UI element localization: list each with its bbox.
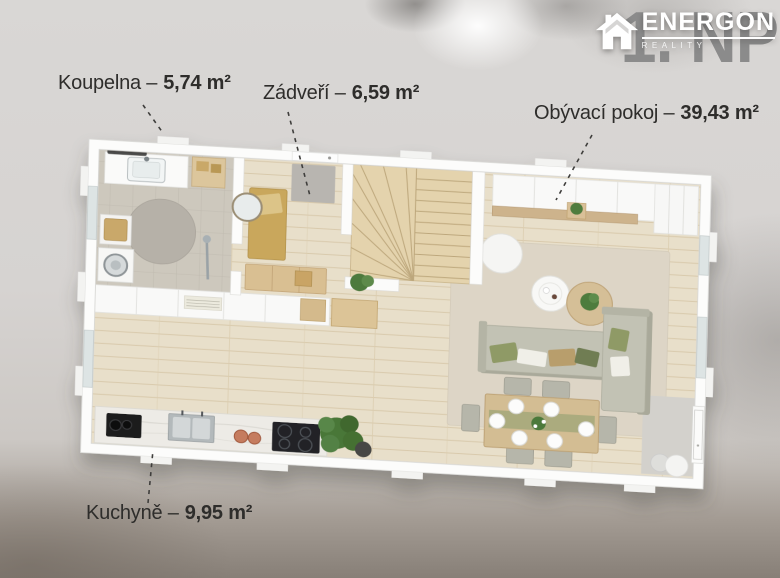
cooktop: [272, 422, 321, 454]
bathroom-window: [87, 186, 98, 239]
room-name: Zádveří –: [263, 82, 346, 105]
pot: [248, 432, 261, 444]
kitchen-window: [83, 330, 94, 387]
pot: [234, 430, 248, 444]
dining-chair: [542, 380, 569, 398]
plate: [543, 402, 559, 418]
hall-doormat: [291, 164, 336, 204]
house-icon: [594, 10, 640, 54]
hall-counter: [331, 298, 377, 328]
staircase: [350, 164, 472, 284]
pillow: [489, 342, 519, 363]
room-label-zadveri: Zádveří – 6,59 m²: [263, 82, 419, 105]
room-label-kuchyne: Kuchyně – 9,95 m²: [86, 502, 252, 525]
room-name: Obývací pokoj –: [534, 102, 674, 125]
room-name: Koupelna –: [58, 72, 157, 95]
room-area: 6,59 m²: [352, 82, 420, 105]
brand-subtitle: REALITY: [642, 41, 775, 50]
brand-logo: ENERGON REALITY: [594, 10, 775, 54]
pillow: [610, 356, 630, 376]
hall-mirror: [232, 193, 262, 222]
dining-chair: [504, 377, 531, 395]
room-area: 9,95 m²: [185, 502, 253, 525]
storage-box: [295, 271, 312, 287]
room-area: 39,43 m²: [680, 102, 758, 125]
living-window: [696, 317, 707, 378]
pillow: [548, 348, 577, 366]
plate: [547, 433, 563, 449]
room-label-koupelna: Koupelna – 5,74 m²: [58, 72, 231, 95]
dining-chair: [461, 404, 479, 431]
room-name: Kuchyně –: [86, 502, 179, 525]
basket: [104, 218, 127, 241]
plate: [489, 413, 505, 429]
wardrobe: [654, 184, 699, 236]
leader-koupelna: [143, 105, 163, 133]
front-door: [691, 406, 704, 464]
floorplan-visualization: 1. NP ENERGON REALITY Koupelna – 5,74 m²…: [0, 0, 780, 578]
brand-name: ENERGON: [642, 10, 775, 35]
hall-sideboard: [245, 264, 327, 294]
dining-chair: [598, 416, 616, 443]
plate: [578, 421, 594, 437]
logo-underline: [642, 37, 775, 39]
living-window-upper: [699, 236, 709, 276]
room-label-obyvaci-pokoj: Obývací pokoj – 39,43 m²: [534, 102, 759, 125]
house-plan: [73, 132, 719, 497]
pillow: [608, 327, 630, 352]
room-area: 5,74 m²: [163, 72, 231, 95]
plate: [508, 399, 524, 415]
plate: [511, 430, 527, 446]
